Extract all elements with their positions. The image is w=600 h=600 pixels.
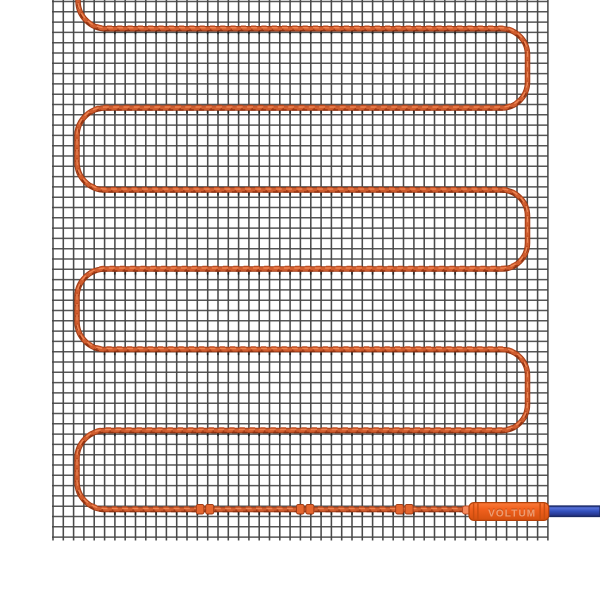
svg-text:VOLTUM: VOLTUM [488, 508, 536, 519]
